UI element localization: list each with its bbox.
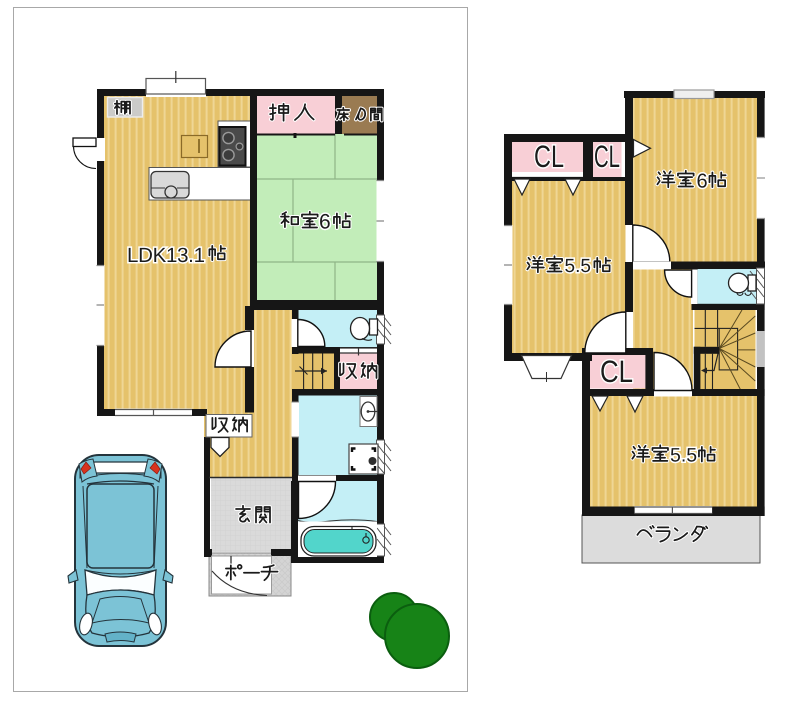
svg-text:LDK13.1: LDK13.1 xyxy=(127,244,205,267)
svg-text:CL: CL xyxy=(534,139,564,174)
svg-text:6: 6 xyxy=(319,211,331,234)
svg-text:6: 6 xyxy=(697,171,708,193)
svg-text:5.5: 5.5 xyxy=(565,256,591,277)
svg-text:CL: CL xyxy=(600,354,633,389)
svg-text:5.5: 5.5 xyxy=(670,445,697,467)
svg-text:CL: CL xyxy=(594,139,620,174)
